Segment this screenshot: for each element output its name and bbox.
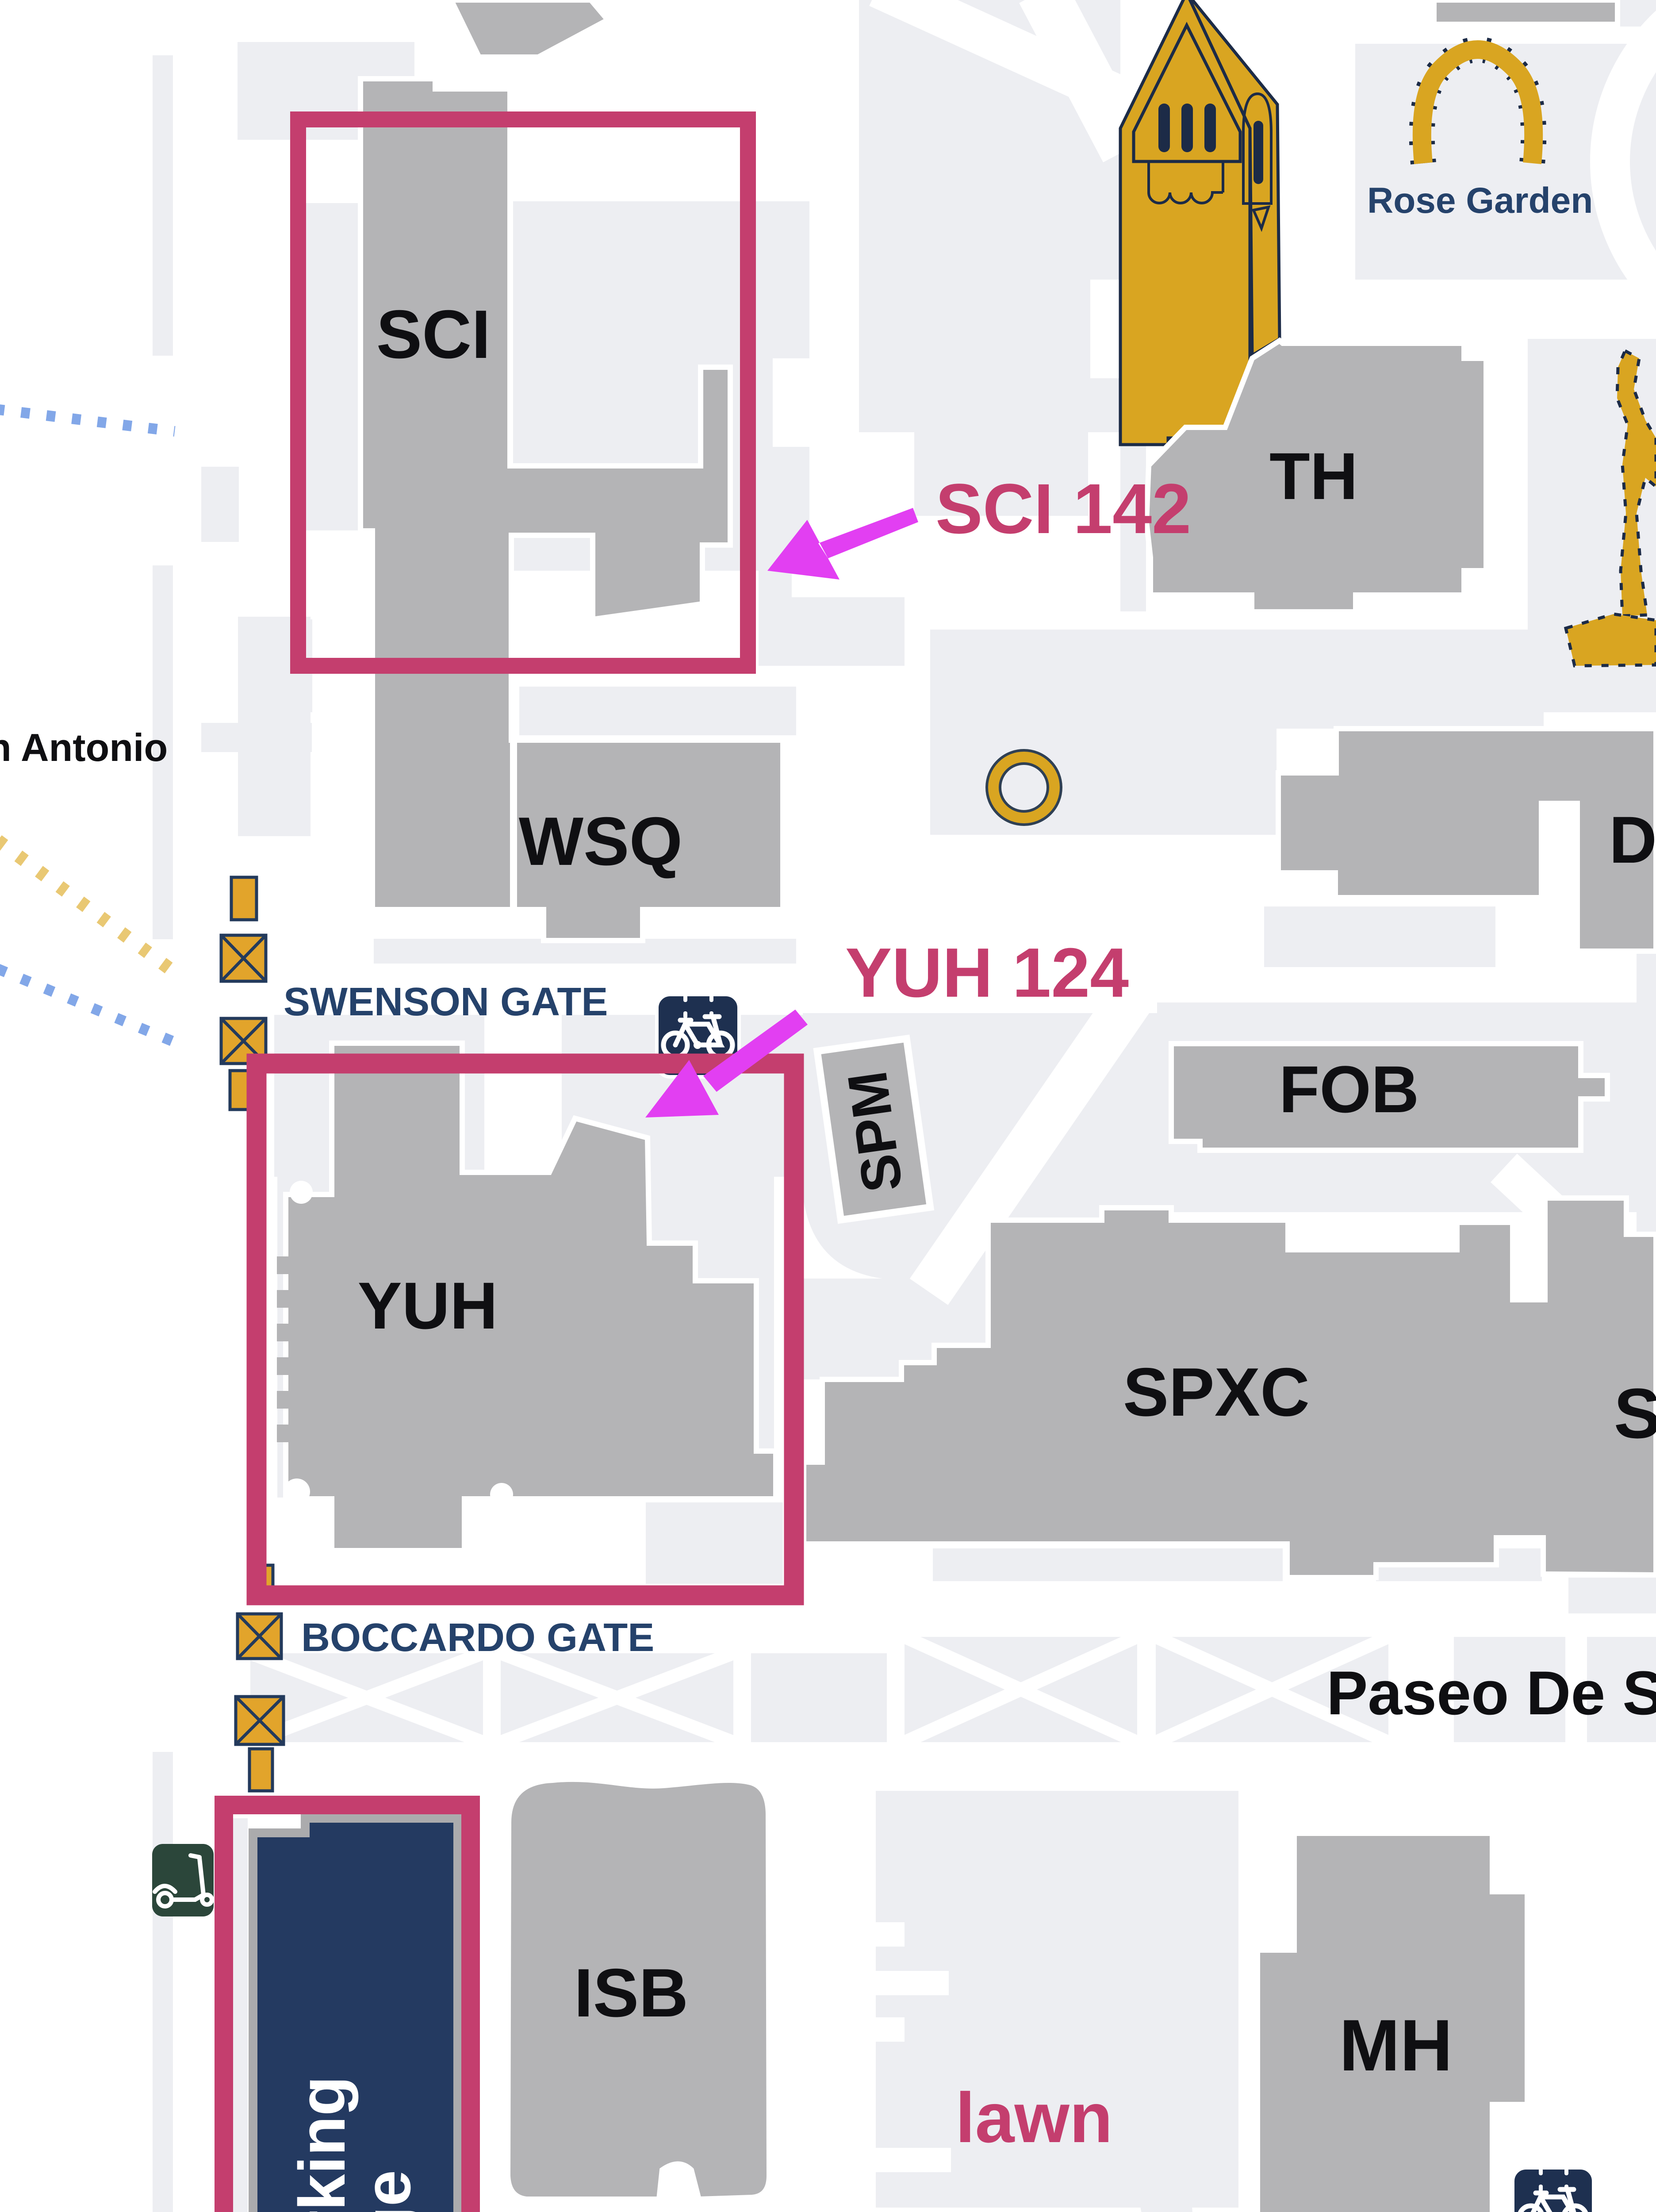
svg-text:MH: MH xyxy=(1339,2005,1453,2086)
svg-text:SCI 142: SCI 142 xyxy=(935,469,1191,548)
svg-text:n Antonio: n Antonio xyxy=(0,726,168,769)
svg-text:West Parking: West Parking xyxy=(286,2076,359,2212)
svg-text:lawn: lawn xyxy=(955,2078,1113,2157)
svg-text:SWENSON GATE: SWENSON GATE xyxy=(284,980,608,1024)
svg-text:D: D xyxy=(1609,803,1656,877)
svg-text:SPXC: SPXC xyxy=(1123,1354,1310,1430)
svg-text:FOB: FOB xyxy=(1279,1052,1419,1126)
svg-text:ISB: ISB xyxy=(574,1955,688,2031)
svg-text:Paseo De Sa: Paseo De Sa xyxy=(1326,1658,1656,1728)
svg-text:SCI: SCI xyxy=(376,296,491,373)
svg-text:S: S xyxy=(1614,1374,1656,1453)
svg-text:YUH: YUH xyxy=(358,1268,498,1343)
svg-text:TH: TH xyxy=(1269,439,1358,513)
svg-text:Garage: Garage xyxy=(351,2170,424,2212)
svg-text:YUH 124: YUH 124 xyxy=(845,934,1129,1012)
svg-text:Rose Garden: Rose Garden xyxy=(1367,180,1593,221)
svg-text:WSQ: WSQ xyxy=(519,803,682,879)
svg-text:BOCCARDO GATE: BOCCARDO GATE xyxy=(301,1616,654,1660)
